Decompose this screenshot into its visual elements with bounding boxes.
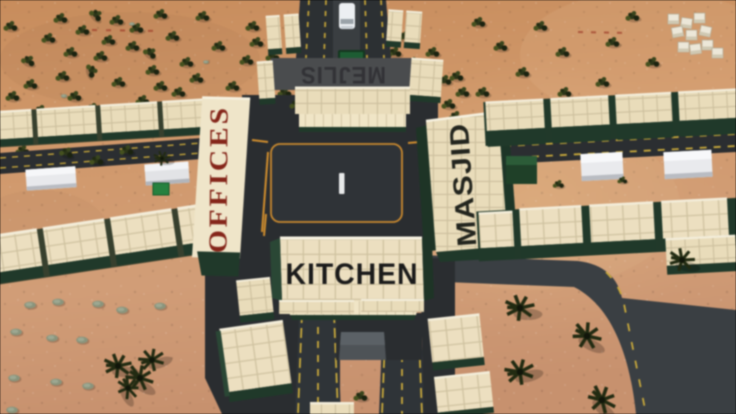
svg-text:KITCHEN: KITCHEN	[286, 258, 419, 291]
svg-text:OFFICES: OFFICES	[203, 105, 233, 253]
svg-text:MEJLIS: MEJLIS	[300, 61, 386, 88]
